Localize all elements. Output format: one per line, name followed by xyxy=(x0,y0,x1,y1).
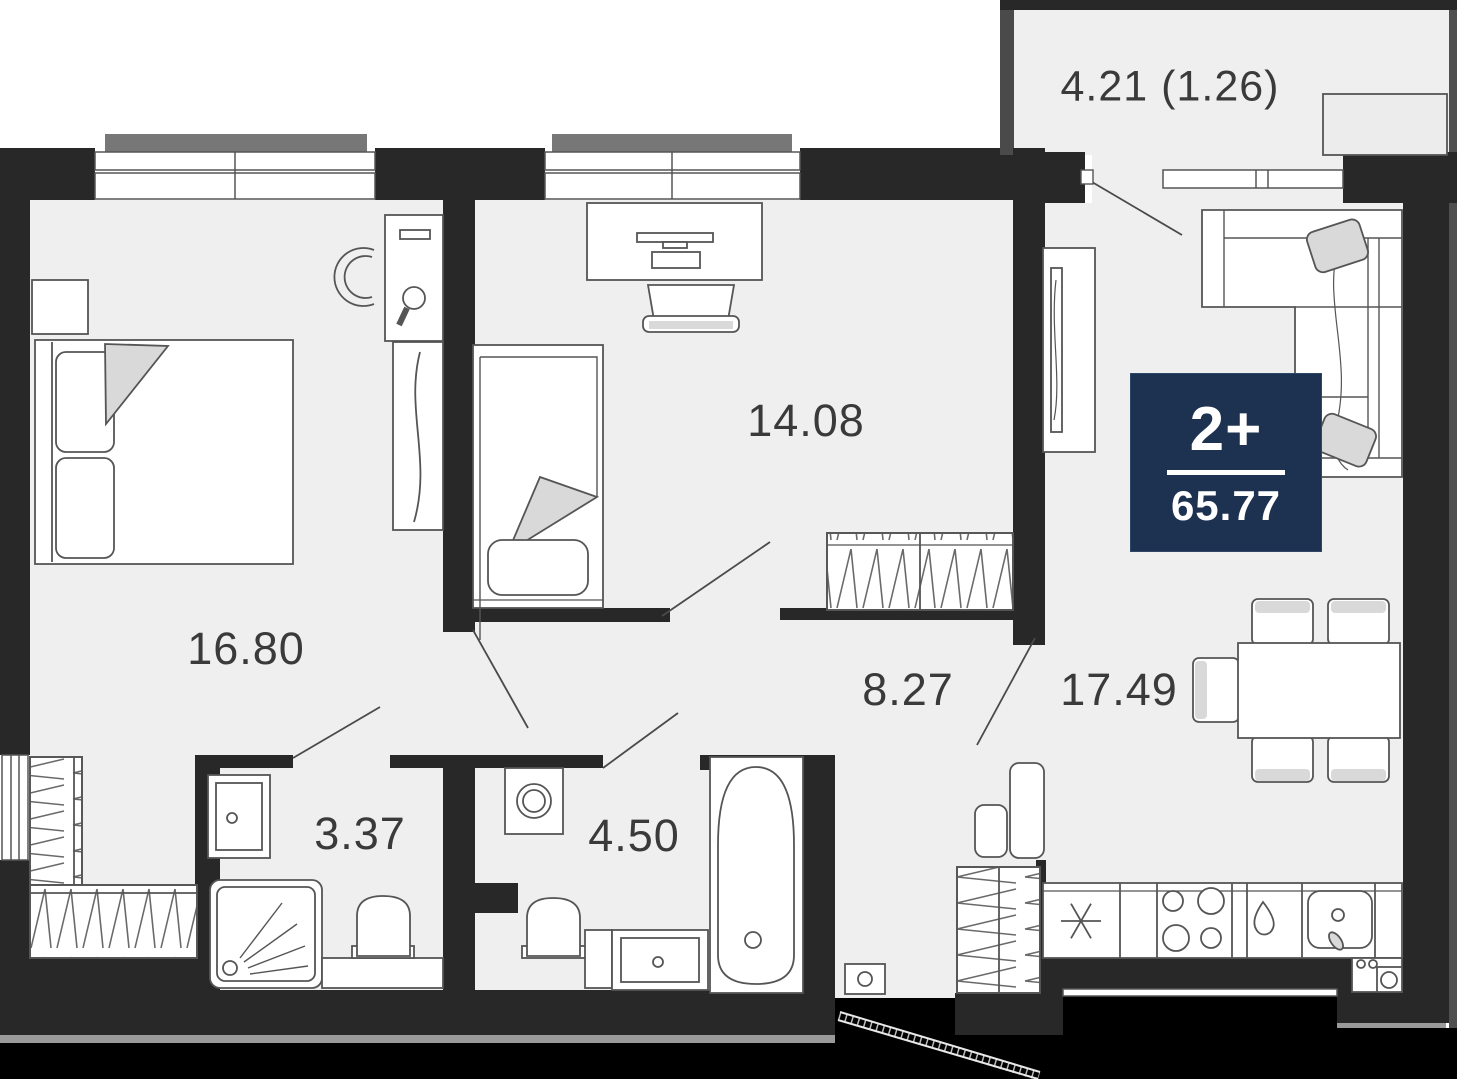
unit-total-area: 65.77 xyxy=(1171,485,1281,527)
hallway-bench xyxy=(1010,763,1044,858)
toilet-2 xyxy=(522,898,586,958)
single-bed xyxy=(473,345,603,640)
hallway-shelf xyxy=(975,805,1007,857)
balcony-furniture xyxy=(1323,94,1447,155)
unit-badge: 2+ 65.77 xyxy=(1130,373,1322,552)
dresser-with-mirror xyxy=(385,215,443,341)
bathroom-counter xyxy=(322,958,443,988)
closet-bedroom-2 xyxy=(827,533,1013,610)
bedroom-1-side-window xyxy=(2,755,28,860)
unit-rooms-count: 2+ xyxy=(1190,399,1263,461)
toilet-1 xyxy=(352,896,414,958)
balcony-door-hinge xyxy=(1081,170,1093,184)
desk xyxy=(587,203,762,280)
desk-chair xyxy=(643,285,739,332)
shower xyxy=(210,880,322,988)
bathroom-cabinet xyxy=(208,775,270,858)
bedroom-1-window xyxy=(95,152,375,199)
room-area-label-bathroom-2: 4.50 xyxy=(588,810,680,862)
bathroom-sink xyxy=(585,930,708,990)
living-balcony-window xyxy=(1163,170,1343,188)
room-area-label-kitchen-living: 17.49 xyxy=(1060,664,1178,716)
bathtub xyxy=(710,757,803,993)
bedroom-2-window xyxy=(545,152,800,199)
nightstand xyxy=(32,280,88,334)
counter-end-unit xyxy=(1352,958,1402,992)
entrance-cabinet xyxy=(845,964,885,994)
room-area-label-bedroom-2: 14.08 xyxy=(747,395,865,447)
kitchen-bottom-window xyxy=(1063,989,1337,996)
kitchen-sink xyxy=(1308,891,1372,952)
wardrobe-bedroom-1 xyxy=(393,342,443,530)
hallway-closet xyxy=(957,867,1040,993)
double-bed xyxy=(35,340,293,564)
room-area-label-hallway: 8.27 xyxy=(862,664,954,716)
room-area-label-bathroom-1: 3.37 xyxy=(314,808,406,860)
washing-machine xyxy=(505,768,563,834)
badge-divider xyxy=(1167,470,1285,475)
floorplan-page: 16.80 14.08 8.27 17.49 3.37 4.50 4.21 (1… xyxy=(0,0,1457,1079)
room-area-label-bedroom-1: 16.80 xyxy=(187,623,305,675)
wardrobe-living xyxy=(1043,248,1095,452)
dining-table xyxy=(1238,643,1400,738)
room-area-label-balcony: 4.21 (1.26) xyxy=(1061,63,1280,112)
